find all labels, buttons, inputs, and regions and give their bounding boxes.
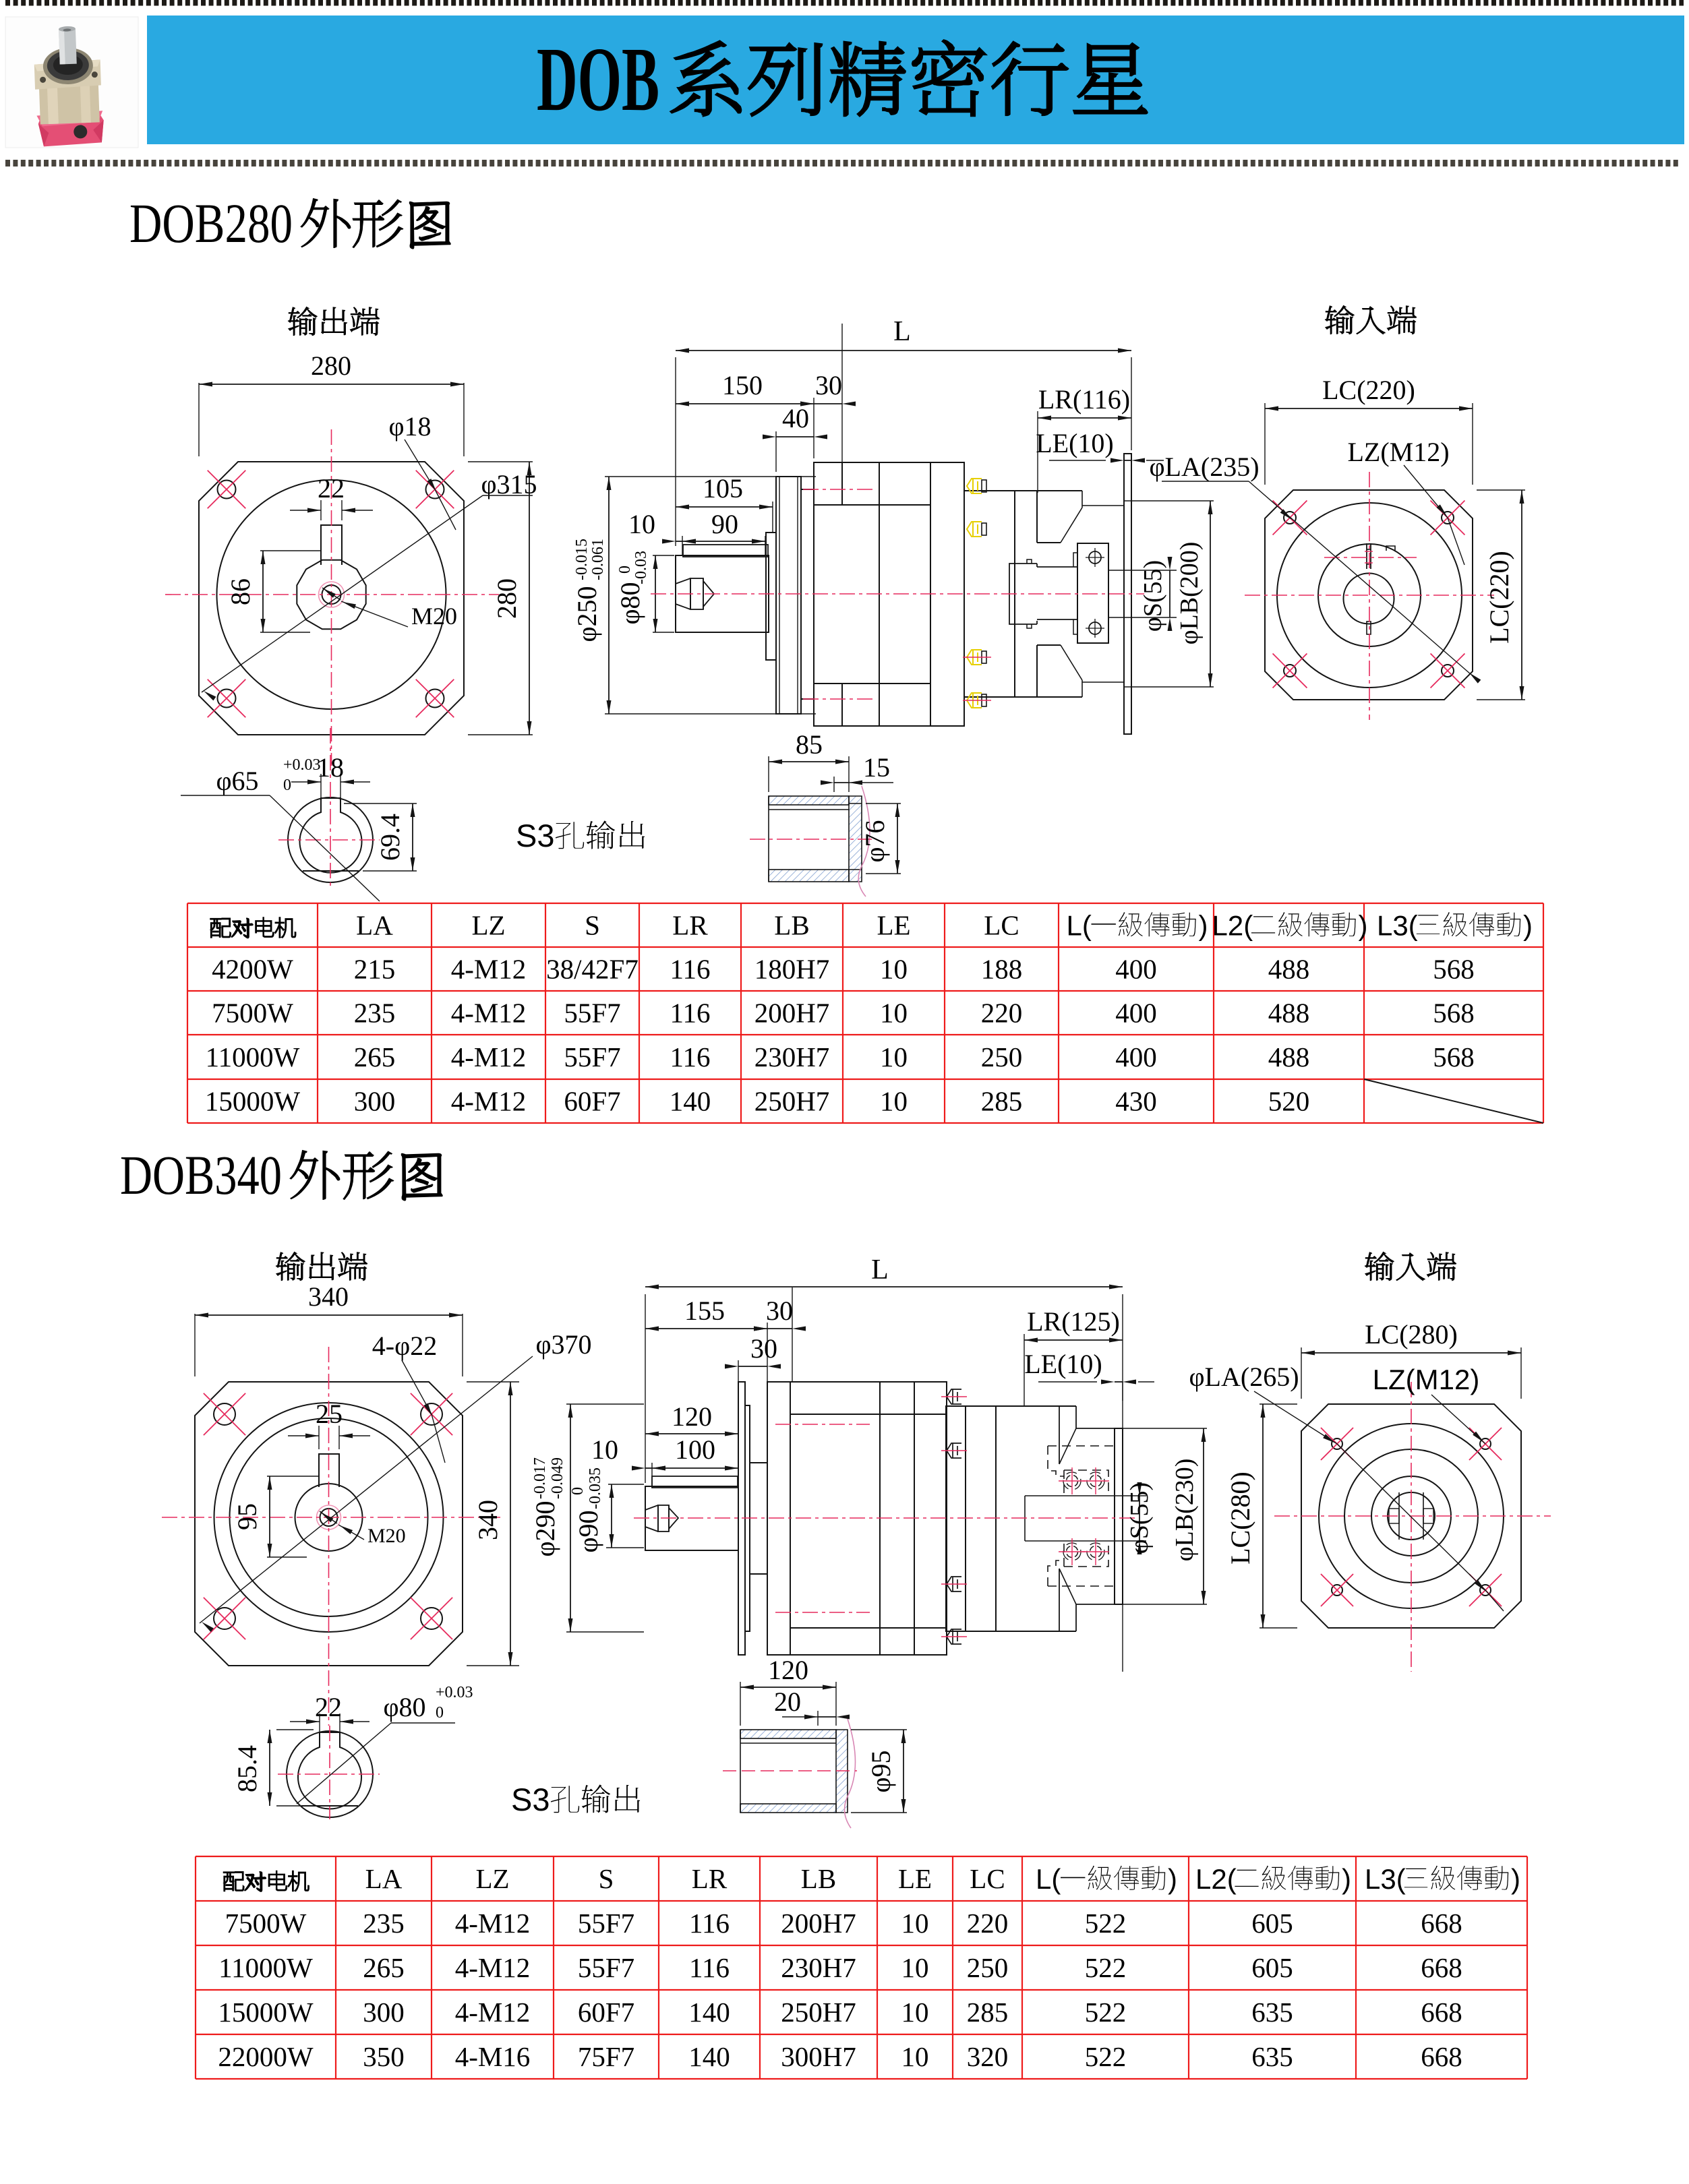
svg-text:10: 10 xyxy=(901,2041,929,2072)
svg-text:φ250: φ250 xyxy=(572,586,602,642)
svg-text:LC: LC xyxy=(984,910,1019,941)
svg-text:15000W: 15000W xyxy=(218,1997,314,2028)
svg-text:140: 140 xyxy=(670,1086,711,1117)
svg-text:116: 116 xyxy=(670,998,711,1029)
svg-text:LZ(M12): LZ(M12) xyxy=(1347,437,1449,467)
svg-text:φLA(265): φLA(265) xyxy=(1189,1362,1299,1392)
svg-text:430: 430 xyxy=(1115,1086,1157,1117)
svg-text:LC(280): LC(280) xyxy=(1365,1319,1458,1349)
svg-text:250H7: 250H7 xyxy=(781,1997,856,2028)
svg-text:0: 0 xyxy=(616,566,634,574)
svg-text:522: 522 xyxy=(1085,1997,1127,2028)
svg-text:522: 522 xyxy=(1085,2041,1127,2072)
svg-text:S3: S3 xyxy=(516,818,555,853)
svg-text:4-M12: 4-M12 xyxy=(451,1041,527,1072)
svg-text:22: 22 xyxy=(315,1692,342,1722)
svg-text:φLB(200): φLB(200) xyxy=(1175,542,1204,645)
svg-text:φS(55): φS(55) xyxy=(1125,1482,1154,1554)
svg-text:LE(10): LE(10) xyxy=(1024,1349,1102,1379)
svg-text:340: 340 xyxy=(308,1281,349,1312)
svg-text:φS(55): φS(55) xyxy=(1139,560,1167,632)
svg-text:488: 488 xyxy=(1268,1041,1310,1072)
svg-text:10: 10 xyxy=(901,1952,929,1983)
svg-text:350: 350 xyxy=(363,2041,405,2072)
svg-text:L: L xyxy=(871,1254,889,1285)
svg-text:568: 568 xyxy=(1433,1041,1475,1072)
svg-text:250H7: 250H7 xyxy=(754,1086,830,1117)
svg-text:4-M12: 4-M12 xyxy=(455,1908,531,1939)
svg-text:10: 10 xyxy=(901,1908,929,1939)
svg-text:4-M12: 4-M12 xyxy=(455,1952,531,1983)
svg-text:L3(: L3( xyxy=(1365,1863,1406,1895)
svg-text:18: 18 xyxy=(317,752,344,783)
svg-text:155: 155 xyxy=(684,1296,725,1326)
svg-text:38/42F7: 38/42F7 xyxy=(546,954,639,985)
svg-text:LZ: LZ xyxy=(475,1863,509,1894)
svg-text:668: 668 xyxy=(1421,2041,1462,2072)
svg-text:-0.03: -0.03 xyxy=(632,551,650,584)
svg-text:φLA(235): φLA(235) xyxy=(1149,452,1259,482)
svg-text:55F7: 55F7 xyxy=(578,1908,634,1939)
svg-text:): ) xyxy=(1168,1863,1177,1895)
svg-text:LZ: LZ xyxy=(471,910,505,941)
svg-text:22: 22 xyxy=(318,473,345,504)
svg-text:4-M12: 4-M12 xyxy=(451,1086,527,1117)
svg-text:7500W: 7500W xyxy=(225,1908,307,1939)
svg-text:250: 250 xyxy=(981,1041,1023,1072)
svg-text:200H7: 200H7 xyxy=(781,1908,856,1939)
svg-text:S: S xyxy=(599,1863,614,1894)
svg-text:-0.049: -0.049 xyxy=(549,1457,566,1499)
svg-text:-0.017: -0.017 xyxy=(531,1457,549,1499)
svg-text:L: L xyxy=(893,316,911,347)
svg-text:LA: LA xyxy=(365,1863,403,1894)
svg-text:): ) xyxy=(1523,910,1533,942)
svg-text:400: 400 xyxy=(1115,998,1157,1029)
svg-text:): ) xyxy=(1511,1863,1520,1895)
svg-text:400: 400 xyxy=(1115,1041,1157,1072)
svg-text:LC: LC xyxy=(970,1863,1005,1894)
svg-text:LR: LR xyxy=(692,1863,728,1894)
svg-text:140: 140 xyxy=(688,2041,730,2072)
svg-text:L(: L( xyxy=(1036,1863,1061,1895)
svg-text:LA: LA xyxy=(356,910,393,941)
svg-text:): ) xyxy=(1359,910,1368,942)
svg-text:4-M12: 4-M12 xyxy=(451,998,527,1029)
svg-text:30: 30 xyxy=(750,1333,777,1364)
svg-text:φ90: φ90 xyxy=(573,1510,603,1552)
svg-text:235: 235 xyxy=(363,1908,405,1939)
svg-text:15000W: 15000W xyxy=(205,1086,301,1117)
svg-text:180H7: 180H7 xyxy=(754,954,830,985)
svg-text:300: 300 xyxy=(363,1997,405,2028)
svg-text:φ80: φ80 xyxy=(615,582,645,624)
svg-text:668: 668 xyxy=(1421,1952,1462,1983)
svg-text:86: 86 xyxy=(225,578,256,605)
svg-text:668: 668 xyxy=(1421,1908,1462,1939)
svg-text:300: 300 xyxy=(354,1086,396,1117)
svg-text:280: 280 xyxy=(311,351,351,381)
svg-text:140: 140 xyxy=(688,1997,730,2028)
svg-text:4-φ22: 4-φ22 xyxy=(372,1331,437,1361)
svg-text:220: 220 xyxy=(981,998,1023,1029)
svg-text:200H7: 200H7 xyxy=(754,998,830,1029)
svg-text:φ95: φ95 xyxy=(866,1750,896,1792)
svg-text:LR(116): LR(116) xyxy=(1038,384,1130,415)
svg-text:10: 10 xyxy=(880,1041,908,1072)
svg-text:400: 400 xyxy=(1115,954,1157,985)
svg-text:75F7: 75F7 xyxy=(578,2041,634,2072)
svg-text:30: 30 xyxy=(766,1296,793,1326)
svg-text:DOB: DOB xyxy=(537,29,659,130)
svg-text:69.4: 69.4 xyxy=(375,814,405,861)
svg-text:φ76: φ76 xyxy=(860,820,890,862)
svg-text:120: 120 xyxy=(768,1655,808,1685)
svg-text:LB: LB xyxy=(774,910,809,941)
svg-text:488: 488 xyxy=(1268,954,1310,985)
svg-text:568: 568 xyxy=(1433,998,1475,1029)
svg-text:L(: L( xyxy=(1067,910,1092,942)
svg-text:105: 105 xyxy=(703,473,743,504)
svg-text:95: 95 xyxy=(232,1503,262,1530)
svg-text:188: 188 xyxy=(981,954,1023,985)
svg-text:-0.035: -0.035 xyxy=(587,1467,604,1509)
svg-text:LC(280): LC(280) xyxy=(1225,1472,1255,1565)
svg-text:250: 250 xyxy=(967,1952,1009,1983)
svg-text:φ18: φ18 xyxy=(388,411,431,442)
svg-text:LR(125): LR(125) xyxy=(1027,1306,1120,1337)
svg-text:265: 265 xyxy=(363,1952,405,1983)
svg-text:L3(: L3( xyxy=(1377,910,1418,942)
svg-text:340: 340 xyxy=(473,1500,503,1540)
svg-text:55F7: 55F7 xyxy=(564,998,620,1029)
svg-text:L2(: L2( xyxy=(1212,910,1253,942)
svg-text:635: 635 xyxy=(1251,1997,1293,2028)
svg-text:668: 668 xyxy=(1421,1997,1462,2028)
svg-text:40: 40 xyxy=(782,403,809,433)
svg-text:10: 10 xyxy=(880,954,908,985)
svg-text:300H7: 300H7 xyxy=(781,2041,856,2072)
svg-text:520: 520 xyxy=(1268,1086,1310,1117)
svg-text:10: 10 xyxy=(880,998,908,1029)
svg-text:11000W: 11000W xyxy=(206,1041,300,1072)
svg-text:+0.03: +0.03 xyxy=(283,756,321,774)
svg-text:LC(220): LC(220) xyxy=(1322,375,1415,405)
svg-text:285: 285 xyxy=(981,1086,1023,1117)
svg-text:4-M12: 4-M12 xyxy=(455,1997,531,2028)
svg-text:522: 522 xyxy=(1085,1952,1127,1983)
svg-text:S3: S3 xyxy=(511,1782,550,1817)
svg-text:4200W: 4200W xyxy=(212,954,293,985)
svg-text:605: 605 xyxy=(1251,1952,1293,1983)
svg-text:150: 150 xyxy=(722,370,763,400)
svg-text:120: 120 xyxy=(672,1401,712,1432)
svg-text:φLB(230): φLB(230) xyxy=(1171,1459,1199,1562)
svg-text:25: 25 xyxy=(316,1399,343,1429)
svg-text:20: 20 xyxy=(774,1687,801,1717)
svg-text:M20: M20 xyxy=(367,1525,406,1547)
svg-text:85: 85 xyxy=(796,729,823,760)
svg-text:220: 220 xyxy=(967,1908,1009,1939)
svg-text:0: 0 xyxy=(283,777,291,794)
svg-text:φ290: φ290 xyxy=(530,1500,560,1556)
svg-text:10: 10 xyxy=(628,509,655,539)
svg-text:230H7: 230H7 xyxy=(754,1041,830,1072)
svg-text:230H7: 230H7 xyxy=(781,1952,856,1983)
svg-text:LZ(M12): LZ(M12) xyxy=(1373,1364,1480,1395)
svg-text:635: 635 xyxy=(1251,2041,1293,2072)
svg-text:90: 90 xyxy=(711,509,738,539)
svg-text:85.4: 85.4 xyxy=(232,1745,262,1792)
svg-text:605: 605 xyxy=(1251,1908,1293,1939)
svg-text:φ370: φ370 xyxy=(535,1329,591,1360)
svg-text:15: 15 xyxy=(863,752,890,783)
svg-text:30: 30 xyxy=(815,370,842,400)
svg-text:265: 265 xyxy=(354,1041,396,1072)
svg-text:LB: LB xyxy=(801,1863,836,1894)
svg-text:): ) xyxy=(1199,910,1208,942)
svg-text:): ) xyxy=(1342,1863,1351,1895)
svg-text:235: 235 xyxy=(354,998,396,1029)
svg-text:116: 116 xyxy=(670,954,711,985)
svg-text:22000W: 22000W xyxy=(218,2041,314,2072)
svg-text:568: 568 xyxy=(1433,954,1475,985)
svg-text:116: 116 xyxy=(689,1952,730,1983)
svg-text:φ80: φ80 xyxy=(383,1692,425,1722)
svg-text:55F7: 55F7 xyxy=(564,1041,620,1072)
svg-text:S: S xyxy=(585,910,600,941)
svg-text:7500W: 7500W xyxy=(212,998,293,1029)
svg-text:280: 280 xyxy=(492,578,522,619)
svg-text:116: 116 xyxy=(670,1041,711,1072)
svg-text:4-M16: 4-M16 xyxy=(455,2041,531,2072)
svg-text:LC(220): LC(220) xyxy=(1484,551,1514,644)
svg-text:320: 320 xyxy=(967,2041,1009,2072)
svg-text:+0.03: +0.03 xyxy=(436,1684,473,1701)
svg-text:0: 0 xyxy=(569,1487,587,1495)
svg-text:LE(10): LE(10) xyxy=(1036,428,1114,458)
svg-text:285: 285 xyxy=(967,1997,1009,2028)
svg-text:0: 0 xyxy=(436,1704,444,1722)
svg-text:-0.015: -0.015 xyxy=(573,539,591,580)
svg-text:LE: LE xyxy=(898,1863,932,1894)
svg-text:10: 10 xyxy=(901,1997,929,2028)
svg-text:10: 10 xyxy=(880,1086,908,1117)
svg-text:10: 10 xyxy=(591,1434,618,1465)
svg-text:φ315: φ315 xyxy=(481,469,537,499)
svg-text:11000W: 11000W xyxy=(218,1952,313,1983)
svg-text:55F7: 55F7 xyxy=(578,1952,634,1983)
svg-text:488: 488 xyxy=(1268,998,1310,1029)
svg-text:L2(: L2( xyxy=(1195,1863,1237,1895)
svg-text:4-M12: 4-M12 xyxy=(451,954,527,985)
svg-text:522: 522 xyxy=(1085,1908,1127,1939)
svg-text:DOB280: DOB280 xyxy=(129,192,293,254)
svg-text:φ65: φ65 xyxy=(216,766,258,796)
svg-text:215: 215 xyxy=(354,954,396,985)
svg-text:DOB340: DOB340 xyxy=(120,1144,282,1206)
svg-text:60F7: 60F7 xyxy=(564,1086,620,1117)
svg-text:100: 100 xyxy=(675,1434,715,1465)
svg-text:LR: LR xyxy=(672,910,708,941)
svg-text:LE: LE xyxy=(877,910,910,941)
svg-text:-0.061: -0.061 xyxy=(589,539,607,580)
svg-text:M20: M20 xyxy=(411,603,457,630)
svg-text:116: 116 xyxy=(689,1908,730,1939)
svg-text:60F7: 60F7 xyxy=(578,1997,634,2028)
